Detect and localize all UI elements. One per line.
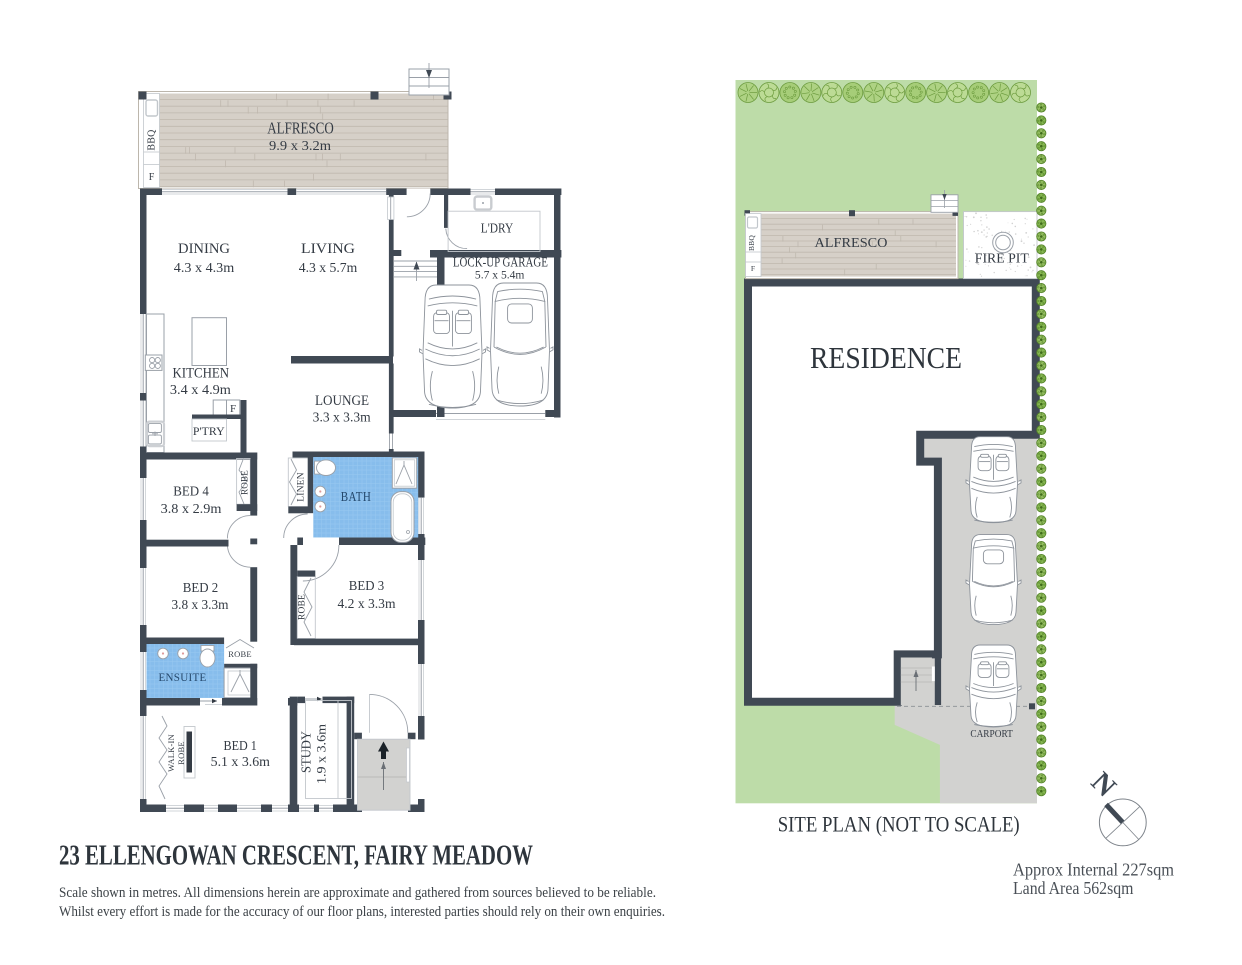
svg-text:5.7 x 5.4m: 5.7 x 5.4m	[475, 269, 525, 281]
svg-text:RESIDENCE: RESIDENCE	[810, 340, 962, 375]
svg-text:LIVING: LIVING	[301, 241, 356, 257]
svg-text:BATH: BATH	[341, 489, 371, 504]
svg-text:P'TRY: P'TRY	[193, 424, 225, 438]
svg-text:BED 3: BED 3	[349, 579, 384, 594]
svg-text:FIRE PIT: FIRE PIT	[975, 251, 1030, 266]
svg-text:BED 1: BED 1	[224, 739, 257, 754]
svg-text:ALFRESCO: ALFRESCO	[267, 119, 334, 138]
svg-text:WALK-IN: WALK-IN	[166, 734, 176, 772]
svg-text:Approx Internal 227sqm: Approx Internal 227sqm	[1013, 860, 1174, 880]
svg-text:ROBE: ROBE	[228, 649, 251, 659]
svg-text:BBQ: BBQ	[147, 129, 158, 151]
svg-text:BED 2: BED 2	[183, 581, 219, 596]
svg-text:1.9 x 3.6m: 1.9 x 3.6m	[314, 724, 329, 784]
svg-text:9.9 x 3.2m: 9.9 x 3.2m	[269, 138, 332, 153]
svg-text:CARPORT: CARPORT	[970, 729, 1013, 740]
svg-text:3.8 x 2.9m: 3.8 x 2.9m	[161, 501, 222, 516]
svg-text:BBQ: BBQ	[747, 235, 756, 251]
svg-text:L'DRY: L'DRY	[481, 222, 514, 237]
svg-text:5.1 x 3.6m: 5.1 x 3.6m	[211, 754, 271, 769]
svg-text:DINING: DINING	[178, 241, 231, 257]
svg-text:ROBE: ROBE	[176, 741, 186, 764]
svg-text:Scale shown in metres. All dim: Scale shown in metres. All dimensions he…	[59, 885, 656, 901]
svg-text:STUDY: STUDY	[300, 731, 315, 773]
svg-text:3.3 x 3.3m: 3.3 x 3.3m	[313, 410, 371, 425]
svg-text:KITCHEN: KITCHEN	[172, 366, 229, 382]
svg-text:Whilst every effort is made fo: Whilst every effort is made for the accu…	[59, 904, 665, 920]
svg-text:3.4 x 4.9m: 3.4 x 4.9m	[170, 382, 232, 397]
svg-text:ROBE: ROBE	[240, 470, 250, 495]
svg-text:LINEN: LINEN	[297, 472, 307, 502]
svg-text:BED 4: BED 4	[173, 485, 209, 500]
svg-text:LOUNGE: LOUNGE	[315, 393, 369, 409]
svg-text:F: F	[149, 172, 155, 183]
svg-text:ALFRESCO: ALFRESCO	[815, 235, 888, 250]
svg-text:23 ELLENGOWAN CRESCENT, FAIRY: 23 ELLENGOWAN CRESCENT, FAIRY MEADOW	[59, 841, 533, 872]
svg-text:Land Area 562sqm: Land Area 562sqm	[1013, 878, 1134, 898]
svg-text:3.8 x 3.3m: 3.8 x 3.3m	[172, 597, 229, 612]
svg-text:4.3 x 5.7m: 4.3 x 5.7m	[299, 260, 358, 275]
svg-text:F: F	[230, 403, 236, 415]
svg-text:SITE PLAN (NOT TO SCALE): SITE PLAN (NOT TO SCALE)	[778, 812, 1020, 837]
svg-text:4.3 x 4.3m: 4.3 x 4.3m	[174, 260, 235, 275]
svg-text:F: F	[751, 264, 755, 273]
svg-text:LOCK-UP GARAGE: LOCK-UP GARAGE	[453, 255, 548, 270]
svg-text:ROBE: ROBE	[298, 594, 308, 620]
svg-text:ENSUITE: ENSUITE	[159, 670, 207, 684]
svg-text:4.2 x 3.3m: 4.2 x 3.3m	[338, 596, 396, 611]
